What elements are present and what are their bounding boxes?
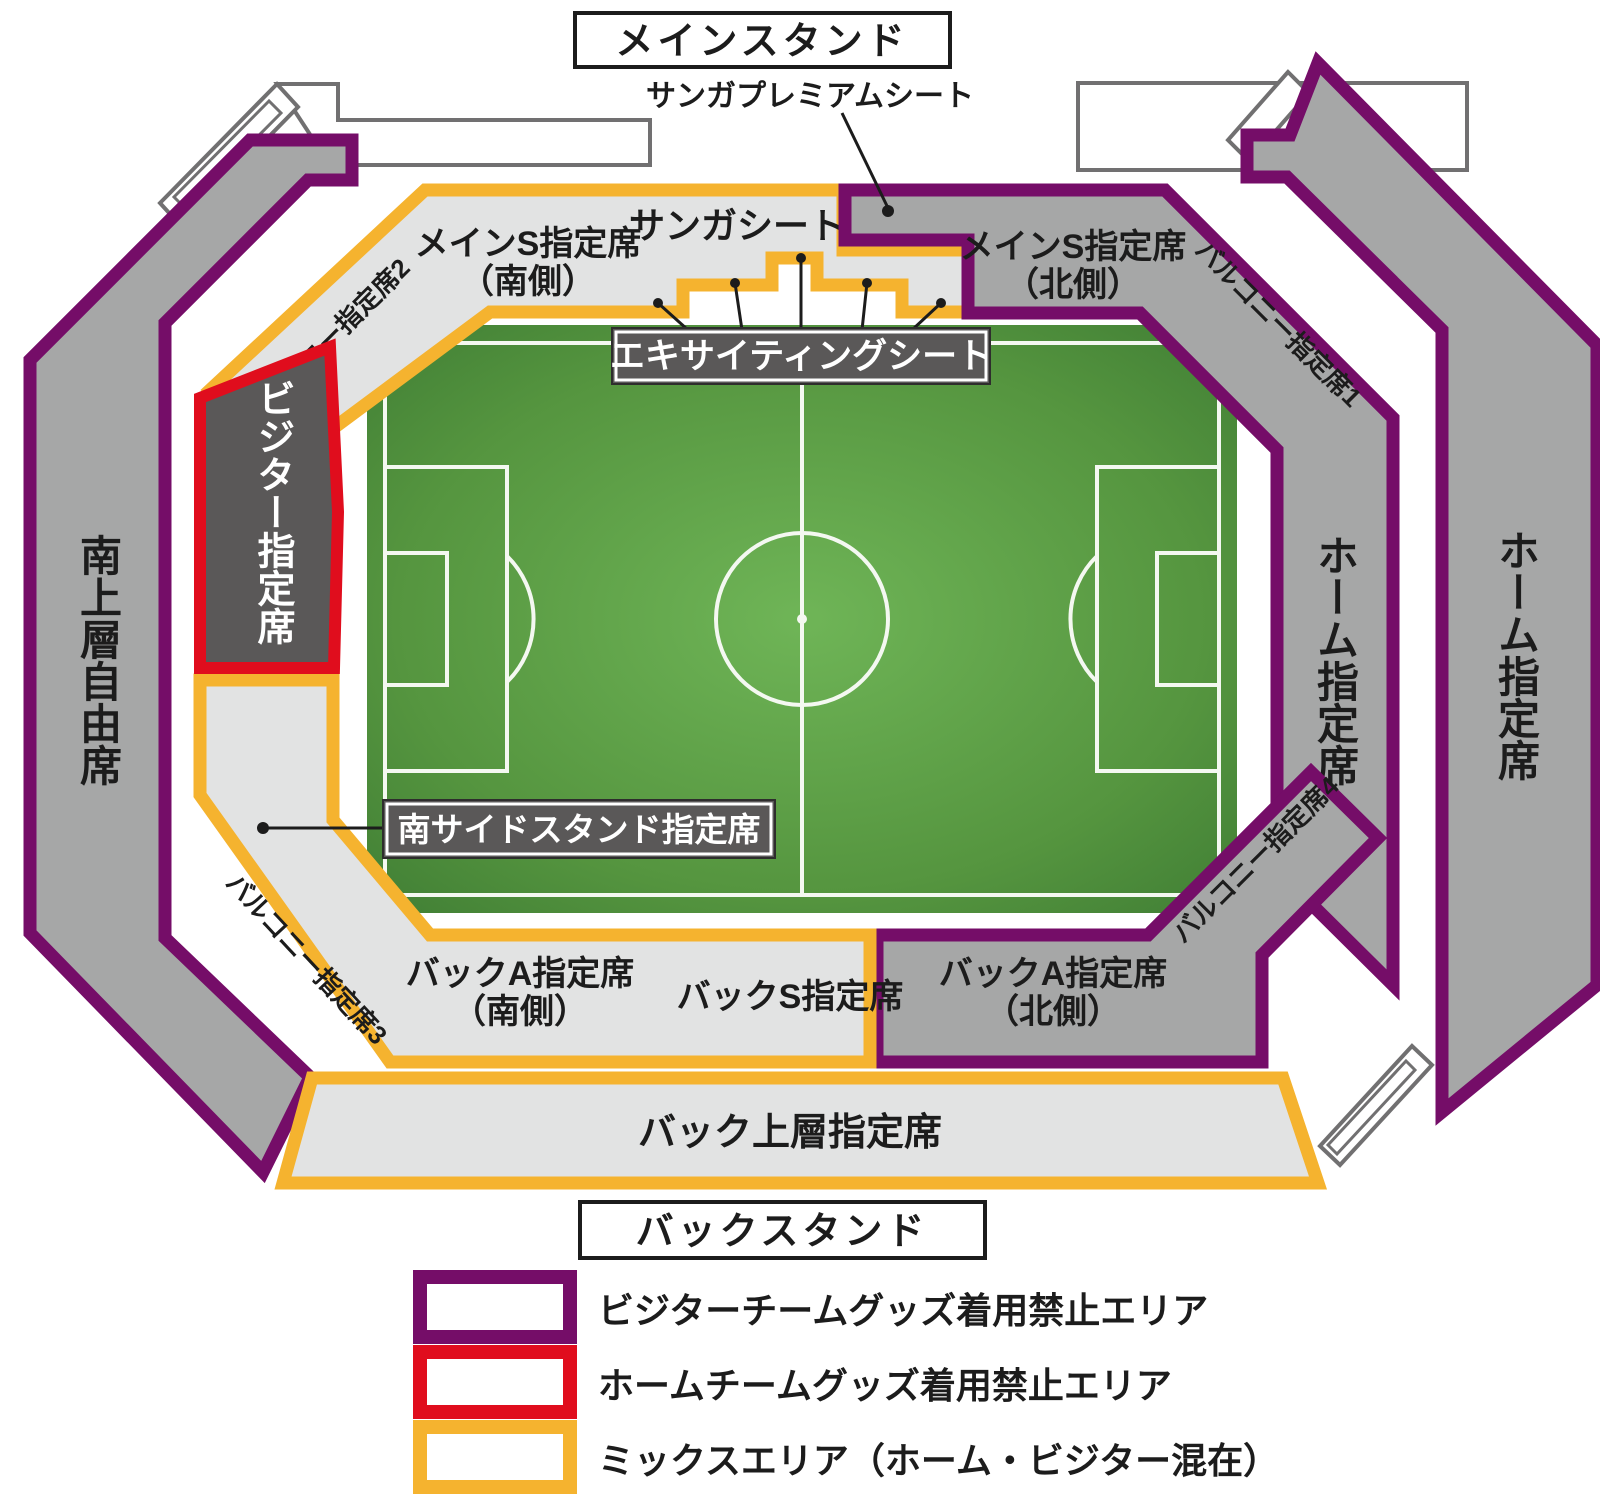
- section-south-side-label: 南サイドスタンド指定席: [398, 811, 761, 848]
- section-back-a-north-line1: バックA指定席: [939, 955, 1168, 993]
- section-back-upper-label: バック上層指定席: [638, 1112, 942, 1154]
- section-exciting-seat-label: エキサイティングシート: [610, 337, 992, 376]
- legend-swatch-home-ban: [420, 1352, 570, 1412]
- legend-label-mix-area: ミックスエリア（ホーム・ビジター混在）: [598, 1440, 1279, 1481]
- legend-label-visitor-ban: ビジターチームグッズ着用禁止エリア: [598, 1290, 1208, 1331]
- section-sanga-premium-label: サンガプレミアムシート: [646, 80, 974, 113]
- stadium-seating-map: 南上層自由席 ホーム指定席 バック上層指定席 メインS指定席 （南側） サンガシ…: [0, 0, 1600, 1500]
- section-visitor-label: ビジター指定席: [251, 379, 295, 645]
- section-main-s-north-line2: （北側）: [1005, 265, 1141, 304]
- main-stand-title: メインスタンド: [615, 21, 908, 63]
- section-back-s-label: バックS指定席: [677, 978, 904, 1016]
- section-back-a-south-line1: バックA指定席: [406, 955, 635, 993]
- section-back-a-north-line2: （北側）: [985, 992, 1121, 1031]
- legend-swatch-mix-area: [420, 1427, 570, 1487]
- section-south-upper-free-label: 南上層自由席: [75, 534, 122, 786]
- legend: ビジターチームグッズ着用禁止エリア ホームチームグッズ着用禁止エリア ミックスエ…: [420, 1277, 1279, 1487]
- section-back-a-south-line2: （南側）: [452, 992, 588, 1031]
- legend-swatch-visitor-ban: [420, 1277, 570, 1337]
- legend-label-home-ban: ホームチームグッズ着用禁止エリア: [598, 1365, 1172, 1406]
- section-home-inner-label: ホーム指定席: [1312, 534, 1359, 786]
- section-main-s-south-line2: （南側）: [460, 262, 596, 301]
- stadium-map-canvas: 南上層自由席 ホーム指定席 バック上層指定席 メインS指定席 （南側） サンガシ…: [0, 0, 1600, 1500]
- section-main-s-south-line1: メインS指定席: [415, 225, 642, 263]
- section-main-s-north-line1: メインS指定席: [960, 228, 1187, 266]
- section-home-outer-label: ホーム指定席: [1493, 529, 1540, 781]
- back-stand-title: バックスタンド: [636, 1211, 929, 1253]
- section-sanga-seat-label: サンガシート: [629, 205, 845, 246]
- stair-ramp-bottom-right: [1320, 1046, 1432, 1165]
